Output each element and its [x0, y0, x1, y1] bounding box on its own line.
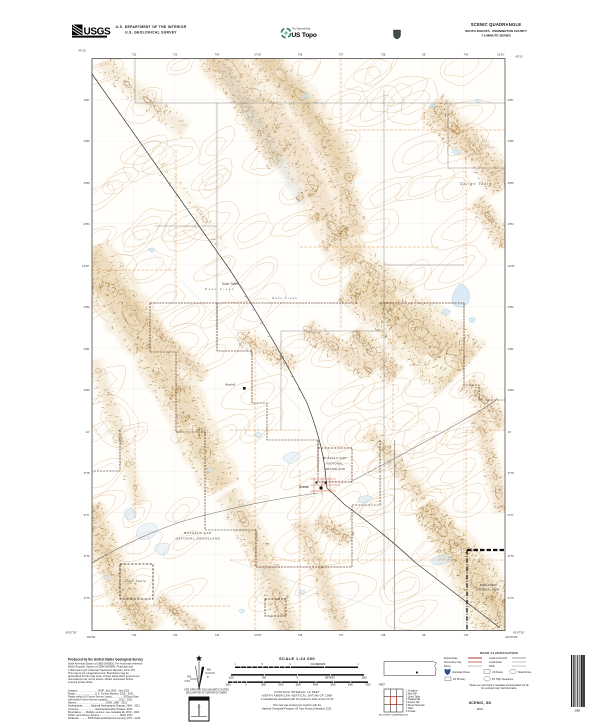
svg-text:entering private lands.: entering private lands.	[68, 680, 93, 684]
svg-text:ADJOINING QUADRANGLES: ADJOINING QUADRANGLES	[379, 714, 409, 717]
svg-text:43°15': 43°15'	[78, 49, 86, 53]
svg-text:State Route: State Route	[518, 671, 532, 674]
svg-text:8 Conata: 8 Conata	[406, 710, 416, 713]
svg-text:CONTOUR INTERVAL 10 FEET: CONTOUR INTERVAL 10 FEET	[274, 690, 320, 694]
svg-text:Please see note found in metad: Please see note found in metadata and as…	[469, 684, 529, 687]
svg-text:4 Owanka SE: 4 Owanka SE	[406, 699, 421, 701]
svg-text:4786: 4786	[508, 139, 514, 143]
svg-text:733: 733	[173, 633, 178, 637]
svg-text:SOUTH DAKOTA - PENNINGTON COUN: SOUTH DAKOTA - PENNINGTON COUNTY	[465, 29, 528, 33]
svg-text:4775: 4775	[508, 596, 514, 600]
svg-text:Interstate Route: Interstate Route	[452, 671, 470, 674]
svg-text:738: 738	[381, 52, 386, 56]
svg-text:102°52'30": 102°52'30"	[505, 635, 518, 639]
svg-text:NATIONAL: NATIONAL	[327, 462, 344, 466]
svg-text:736: 736	[298, 633, 303, 637]
svg-text:U.S. GEOLOGICAL SURVEY: U.S. GEOLOGICAL SURVEY	[125, 31, 177, 35]
svg-text:Produced by the United States: Produced by the United States Geological…	[68, 658, 143, 662]
svg-text:Rake Creek: Rake Creek	[205, 287, 235, 291]
svg-text:0°16': 0°16'	[185, 680, 191, 683]
svg-text:1000: 1000	[361, 678, 367, 680]
svg-text:2 Wall SW: 2 Wall SW	[406, 693, 417, 695]
svg-text:ISBN: ISBN	[575, 710, 581, 713]
svg-text:4780: 4780	[84, 388, 90, 392]
svg-text:BUFFALO GAP: BUFFALO GAP	[184, 531, 211, 535]
svg-text:7 Table: 7 Table	[406, 708, 414, 710]
svg-text:740: 740	[464, 52, 469, 56]
svg-text:U.S. DEPARTMENT OF THE INTERIO: U.S. DEPARTMENT OF THE INTERIOR	[116, 25, 187, 29]
svg-text:10': 10'	[508, 430, 512, 434]
svg-text:GRASSLAND: GRASSLAND	[325, 467, 346, 471]
svg-text:734: 734	[215, 52, 220, 56]
svg-text:2000: 2000	[278, 685, 284, 687]
svg-text:43°07'30": 43°07'30"	[513, 631, 525, 635]
svg-text:UTM GRID AND 2021 MAGNETIC NOR: UTM GRID AND 2021 MAGNETIC NORTH	[184, 688, 229, 691]
svg-text:for restricted road / trail in: for restricted road / trail information	[481, 687, 517, 690]
svg-text:Local Connector: Local Connector	[489, 657, 507, 660]
svg-text:1000: 1000	[261, 685, 267, 687]
svg-text:US Route: US Route	[492, 671, 503, 674]
svg-text:4778: 4778	[84, 471, 90, 475]
svg-text:FS Primary: FS Primary	[453, 678, 466, 681]
svg-text:734: 734	[215, 633, 220, 637]
svg-text:ROAD CLASSIFICATION: ROAD CLASSIFICATION	[480, 651, 518, 655]
svg-text:4777: 4777	[84, 513, 90, 517]
svg-text:BUFFALO GAP: BUFFALO GAP	[323, 456, 346, 460]
svg-text:4782: 4782	[84, 305, 90, 309]
svg-text:55': 55'	[422, 52, 426, 56]
svg-text:4782: 4782	[508, 305, 514, 309]
svg-text:SCALE 1:24 000: SCALE 1:24 000	[279, 656, 315, 661]
svg-text:738: 738	[381, 633, 386, 637]
svg-text:4WD: 4WD	[489, 665, 495, 668]
svg-text:Ramp: Ramp	[444, 665, 451, 668]
svg-text:SCENIC QUADRANGLE: SCENIC QUADRANGLE	[471, 22, 521, 27]
svg-text:Kube Table: Kube Table	[222, 282, 238, 286]
svg-text:Rake Creek: Rake Creek	[272, 296, 298, 300]
svg-text:2021: 2021	[477, 707, 484, 711]
svg-text:3 Quinn Table: 3 Quinn Table	[406, 696, 421, 698]
svg-text:4776: 4776	[508, 554, 514, 558]
svg-text:A metadata file associated wit: A metadata file associated with this pro…	[261, 698, 334, 701]
svg-text:1000: 1000	[228, 678, 234, 680]
svg-text:737: 737	[339, 633, 344, 637]
svg-text:4781: 4781	[508, 347, 514, 351]
svg-text:740: 740	[464, 633, 469, 637]
svg-text:Secondary Hwy: Secondary Hwy	[444, 661, 462, 664]
svg-text:5 Interior NW: 5 Interior NW	[406, 701, 420, 704]
svg-text:4785: 4785	[508, 181, 514, 185]
svg-text:6 Sheep Mountain: 6 Sheep Mountain	[406, 704, 425, 707]
svg-text:4781: 4781	[84, 347, 90, 351]
svg-text:4776: 4776	[84, 554, 90, 558]
svg-text:12'30": 12'30"	[508, 264, 515, 268]
svg-text:US Topo: US Topo	[292, 32, 317, 39]
svg-text:4000: 4000	[313, 685, 319, 687]
svg-text:10': 10'	[86, 430, 90, 434]
svg-text:DECLINATION AT CENTER OF SHEET: DECLINATION AT CENTER OF SHEET	[186, 691, 228, 694]
svg-text:NATIONAL PARK: NATIONAL PARK	[476, 588, 500, 592]
svg-text:Expressway: Expressway	[444, 657, 458, 660]
svg-text:732: 732	[132, 633, 137, 637]
svg-text:GN: GN	[187, 675, 191, 679]
svg-text:4787: 4787	[508, 98, 514, 102]
svg-text:5000: 5000	[330, 685, 336, 687]
svg-text:7.5-MINUTE SERIES: 7.5-MINUTE SERIES	[481, 34, 510, 38]
svg-text:SD: SD	[197, 707, 200, 709]
svg-text:6000: 6000	[348, 685, 354, 687]
svg-text:Hart Table: Hart Table	[125, 579, 146, 583]
svg-text:SCENIC, SD: SCENIC, SD	[469, 701, 492, 705]
svg-text:BADLANDS: BADLANDS	[480, 583, 496, 587]
svg-text:57'30": 57'30"	[254, 52, 261, 56]
svg-text:Galigo Table: Galigo Table	[460, 182, 492, 186]
svg-text:National Geospatial Program US: National Geospatial Program US Topo Prod…	[262, 708, 332, 711]
svg-text:4775: 4775	[84, 596, 90, 600]
svg-text:4787: 4787	[84, 98, 90, 102]
svg-text:55': 55'	[422, 633, 426, 637]
svg-text:KILOMETERS: KILOMETERS	[311, 664, 326, 666]
svg-text:57'30": 57'30"	[254, 633, 261, 637]
svg-text:1000: 1000	[225, 685, 231, 687]
svg-text:8°: 8°	[207, 676, 209, 679]
svg-text:12'30": 12'30"	[82, 264, 89, 268]
svg-text:43°15': 43°15'	[515, 55, 523, 59]
svg-text:The National Map: The National Map	[292, 27, 311, 30]
svg-text:Wetlands.............FWS Natio: Wetlands.............FWS National Wetlan…	[68, 716, 141, 720]
svg-text:4778: 4778	[508, 471, 514, 475]
svg-text:102°00': 102°00'	[86, 635, 96, 639]
svg-text:733: 733	[173, 52, 178, 56]
svg-text:4777: 4777	[508, 513, 514, 517]
svg-text:43°07'30": 43°07'30"	[65, 631, 77, 635]
svg-text:1 Creighton: 1 Creighton	[406, 690, 419, 693]
svg-text:4784: 4784	[508, 222, 514, 226]
svg-text:7000: 7000	[365, 685, 371, 687]
svg-text:737: 737	[339, 52, 344, 56]
svg-text:METERS: METERS	[325, 678, 335, 680]
svg-text:MN: MN	[207, 668, 211, 672]
svg-text:732: 732	[132, 52, 137, 56]
svg-text:FEET: FEET	[379, 685, 385, 687]
svg-text:736: 736	[298, 52, 303, 56]
svg-text:4784: 4784	[84, 222, 90, 226]
svg-text:Scenic: Scenic	[299, 485, 309, 489]
svg-text:4780: 4780	[508, 388, 514, 392]
svg-text:3000: 3000	[296, 685, 302, 687]
svg-text:4786: 4786	[84, 139, 90, 143]
svg-text:FS High Clearance: FS High Clearance	[492, 678, 514, 681]
svg-text:52'30": 52'30"	[497, 52, 504, 56]
svg-text:Windmill: Windmill	[225, 383, 235, 387]
svg-text:Local Road: Local Road	[489, 661, 502, 664]
svg-text:4785: 4785	[84, 181, 90, 185]
svg-text:NATIONAL GRASSLAND: NATIONAL GRASSLAND	[176, 537, 221, 541]
